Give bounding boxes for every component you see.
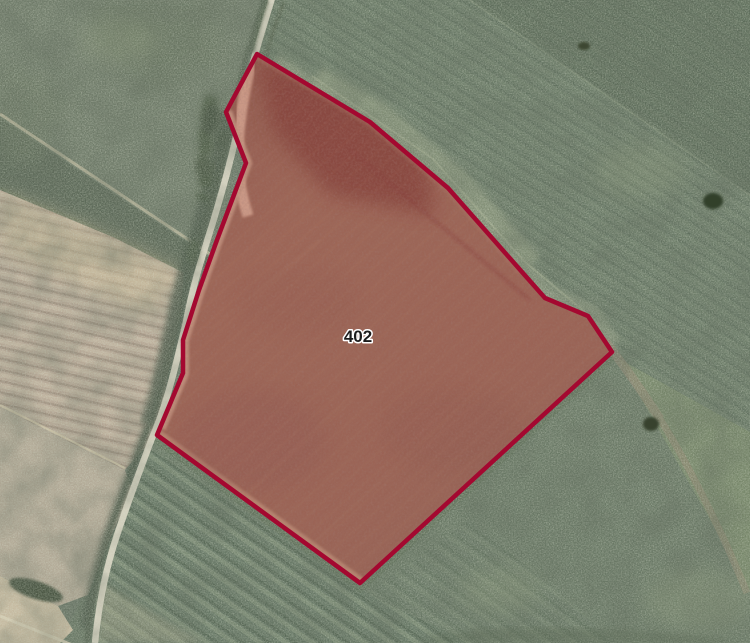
svg-text:402: 402 bbox=[344, 327, 372, 346]
